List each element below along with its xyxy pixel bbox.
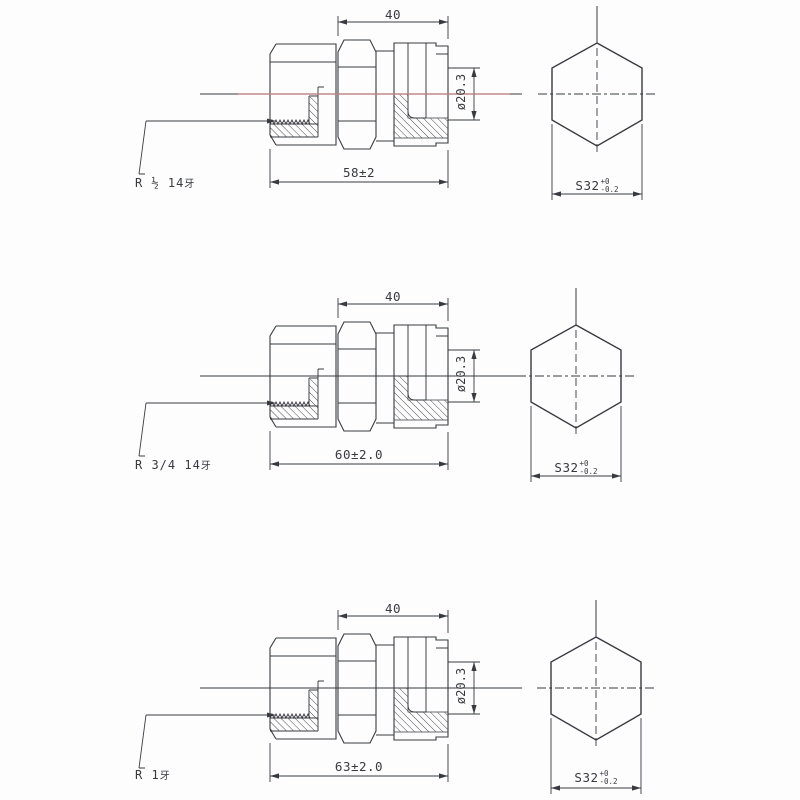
tolerance-lower: -0.2 (600, 778, 618, 786)
hex-end-view (517, 288, 635, 482)
hex-width-value: S32 (554, 461, 578, 475)
thread-spec-label: R ½ 14牙 (135, 176, 194, 192)
thread-spec-label: R 1牙 (135, 768, 170, 784)
tolerance-lower: -0.2 (601, 186, 619, 194)
bore-dimension-label: ø20.3 (454, 62, 468, 122)
bore-dimension-label: ø20.3 (454, 344, 468, 404)
width-dimension-label: 40 (385, 290, 401, 304)
row2-drawing (130, 284, 700, 492)
length-dimension-label: 58±2 (343, 166, 375, 180)
thread-spec-suffix: 牙 (201, 461, 211, 472)
thread-spec-label: R 3/4 14牙 (135, 458, 211, 474)
thread-spec-suffix: 牙 (160, 771, 170, 782)
length-dimension-label: 60±2.0 (335, 448, 383, 462)
thread-spec-text: R 1 (135, 768, 160, 782)
hex-end-view (538, 6, 656, 200)
width-dimension-label: 40 (385, 8, 401, 22)
width-dimension-label: 40 (385, 602, 401, 616)
thread-spec-suffix: 牙 (184, 179, 194, 190)
bore-dimension-label: ø20.3 (454, 656, 468, 716)
tolerance-lower: -0.2 (580, 468, 598, 476)
hex-width-value: S32 (575, 179, 599, 193)
hex-width-tolerance: +0-0.2 (601, 178, 619, 193)
hex-width-tolerance: +0-0.2 (580, 460, 598, 475)
hex-width-dimension-label: S32 +0-0.2 (554, 460, 597, 475)
technical-drawing-canvas: 40 ø20.3 58±2 R ½ 14牙 S32 +0-0.2 40 ø20.… (0, 0, 800, 800)
hex-end-view (537, 600, 655, 794)
hex-width-dimension-label: S32 +0-0.2 (575, 178, 618, 193)
length-dimension-label: 63±2.0 (335, 760, 383, 774)
hex-width-dimension-label: S32 +0-0.2 (574, 770, 617, 785)
hex-width-value: S32 (574, 771, 598, 785)
thread-spec-text: R ½ 14 (135, 176, 184, 190)
thread-spec-text: R 3/4 14 (135, 458, 201, 472)
hex-width-tolerance: +0-0.2 (600, 770, 618, 785)
